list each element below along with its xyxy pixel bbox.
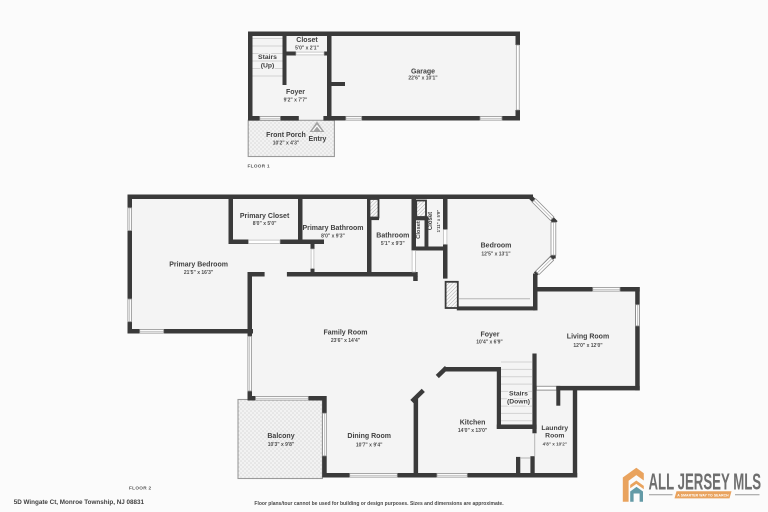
svg-text:ALL JERSEY MLS: ALL JERSEY MLS bbox=[649, 469, 762, 495]
svg-text:Balcony: Balcony bbox=[267, 433, 294, 440]
svg-text:10'2" x 4'3": 10'2" x 4'3" bbox=[273, 141, 300, 147]
svg-text:Closet: Closet bbox=[416, 221, 422, 239]
svg-text:23'6" x 14'4": 23'6" x 14'4" bbox=[331, 338, 361, 344]
svg-text:Bathroom: Bathroom bbox=[376, 232, 409, 239]
svg-text:10'7" x 9'4": 10'7" x 9'4" bbox=[356, 442, 383, 448]
svg-text:Foyer: Foyer bbox=[480, 331, 499, 338]
svg-text:Dining Room: Dining Room bbox=[347, 433, 391, 440]
svg-text:Living Room: Living Room bbox=[567, 334, 609, 341]
svg-text:Primary Closet: Primary Closet bbox=[240, 213, 290, 220]
svg-text:5D Wingate Ct, Monroe Township: 5D Wingate Ct, Monroe Township, NJ 08831 bbox=[14, 499, 145, 506]
svg-text:Foyer: Foyer bbox=[286, 89, 305, 96]
svg-text:22'6" x 10'1": 22'6" x 10'1" bbox=[408, 76, 438, 82]
svg-text:Primary Bedroom: Primary Bedroom bbox=[169, 262, 228, 269]
svg-text:Laundry: Laundry bbox=[541, 425, 568, 432]
svg-text:5'0" x 2'1": 5'0" x 2'1" bbox=[295, 46, 319, 52]
svg-text:5'1" x 9'3": 5'1" x 9'3" bbox=[381, 241, 405, 247]
svg-text:Closet: Closet bbox=[428, 212, 434, 230]
svg-text:8'0" x 5'0": 8'0" x 5'0" bbox=[253, 221, 277, 227]
svg-text:10'4" x 6'9": 10'4" x 6'9" bbox=[476, 340, 503, 346]
svg-text:12'0" x 12'0": 12'0" x 12'0" bbox=[573, 343, 603, 349]
svg-text:Garage: Garage bbox=[411, 69, 435, 76]
svg-text:21'5" x 16'3": 21'5" x 16'3" bbox=[184, 270, 214, 276]
svg-text:Family Room: Family Room bbox=[324, 330, 368, 337]
svg-text:Stairs: Stairs bbox=[509, 391, 528, 398]
svg-text:FLOOR 2: FLOOR 2 bbox=[129, 486, 152, 491]
svg-text:Primary Bathroom: Primary Bathroom bbox=[302, 225, 363, 232]
svg-text:4'8" x 10'2": 4'8" x 10'2" bbox=[543, 441, 567, 446]
svg-text:FLOOR 1: FLOOR 1 bbox=[248, 164, 271, 169]
svg-text:Stairs: Stairs bbox=[258, 54, 277, 61]
svg-text:Floor plans/tour cannot be use: Floor plans/tour cannot be used for buil… bbox=[254, 501, 504, 507]
svg-text:Entry: Entry bbox=[309, 136, 327, 143]
svg-text:Kitchen: Kitchen bbox=[460, 419, 486, 426]
svg-text:A SMARTER WAY TO SEARCH: A SMARTER WAY TO SEARCH bbox=[677, 493, 729, 497]
svg-text:Room: Room bbox=[545, 433, 564, 440]
svg-text:Front Porch: Front Porch bbox=[266, 132, 306, 139]
svg-text:Bedroom: Bedroom bbox=[481, 243, 512, 250]
svg-text:10'3" x 9'8": 10'3" x 9'8" bbox=[268, 442, 295, 448]
svg-text:8'0" x 9'3": 8'0" x 9'3" bbox=[321, 234, 345, 240]
svg-text:Closet: Closet bbox=[296, 37, 318, 44]
svg-text:14'0" x 13'0": 14'0" x 13'0" bbox=[458, 428, 488, 434]
svg-text:(Down): (Down) bbox=[507, 399, 530, 406]
svg-text:1'11" x 5'9": 1'11" x 5'9" bbox=[436, 210, 441, 233]
svg-text:9'2" x 7'7": 9'2" x 7'7" bbox=[284, 98, 308, 104]
svg-text:(Up): (Up) bbox=[261, 63, 275, 70]
svg-text:12'5" x 13'1": 12'5" x 13'1" bbox=[481, 252, 511, 258]
